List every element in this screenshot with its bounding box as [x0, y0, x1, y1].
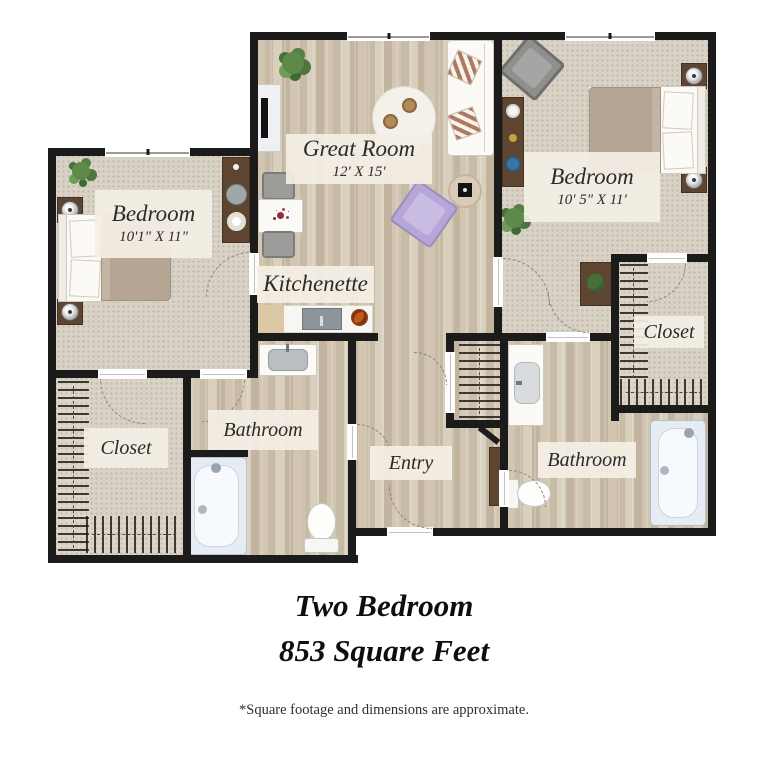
floor-plan: Great Room 12' X 15' Bedroom 10'1" X 11"…: [0, 0, 768, 768]
closet-rod: [92, 534, 176, 535]
closet-rod: [479, 348, 480, 414]
door-opening: [647, 253, 687, 263]
bathtub: [650, 420, 706, 526]
wall: [250, 333, 378, 341]
wall: [446, 420, 508, 428]
label-kitchenette: Kitchenette: [257, 266, 374, 303]
wall: [611, 405, 716, 413]
door-opening: [347, 424, 357, 460]
tv-icon: [261, 98, 268, 138]
window: [565, 31, 655, 41]
label-closet-left: Closet: [84, 428, 168, 468]
shower-head: [684, 428, 694, 438]
accent-table-plant: [587, 274, 605, 292]
room-name: Bathroom: [223, 420, 302, 441]
plant-great-room: [282, 52, 304, 74]
tv-stand: [256, 84, 281, 152]
wall: [183, 450, 248, 457]
kitchen-counter-wood: [258, 305, 284, 333]
door-opening: [98, 369, 147, 379]
door-opening: [200, 369, 247, 379]
room-dims: 12' X 15': [332, 164, 385, 181]
lamp: [685, 67, 703, 85]
dresser-knob: [509, 134, 517, 142]
room-dims: 10' 5" X 11': [557, 192, 627, 209]
plan-subtitle: 853 Square Feet: [0, 633, 768, 669]
dresser-plate: [506, 104, 520, 118]
label-bathroom-right: Bathroom: [538, 442, 636, 478]
label-closet-right: Closet: [634, 316, 704, 348]
bed-pillow: [662, 131, 694, 170]
sofa-back-line: [484, 44, 485, 152]
dresser-knob: [233, 164, 239, 170]
label-entry: Entry: [370, 446, 452, 480]
window: [105, 147, 190, 157]
flower-centerpiece: [277, 212, 284, 219]
wall: [250, 32, 258, 378]
door-opening: [546, 332, 590, 342]
dresser-mirror: [226, 184, 247, 205]
dining-chair: [262, 231, 295, 258]
kitchen-faucet: [320, 316, 323, 326]
room-name: Closet: [100, 438, 151, 459]
toilet: [307, 503, 336, 541]
plate: [402, 98, 417, 113]
door-opening: [499, 470, 509, 507]
dresser-bowl: [505, 156, 521, 172]
room-name: Bathroom: [547, 450, 626, 471]
room-name: Bedroom: [112, 202, 195, 226]
tub-drain: [198, 505, 207, 514]
sink-faucet: [286, 344, 289, 352]
room-name: Bedroom: [550, 165, 633, 189]
label-bedroom-left: Bedroom 10'1" X 11": [95, 190, 212, 258]
plate: [383, 114, 398, 129]
toilet-tank: [304, 538, 339, 553]
door-opening: [493, 257, 503, 307]
room-name: Great Room: [303, 137, 415, 161]
wall: [48, 555, 358, 563]
room-name: Kitchenette: [263, 272, 368, 296]
wall: [183, 370, 191, 563]
tub-drain: [660, 466, 669, 475]
room-name: Closet: [643, 322, 694, 343]
side-table-dot: [463, 188, 467, 192]
wall: [48, 148, 56, 563]
dresser-plate: [227, 212, 246, 231]
pizza: [351, 309, 368, 326]
room-dims: 10'1" X 11": [119, 229, 188, 246]
plant-bedroom-left: [72, 162, 90, 180]
lamp: [61, 303, 79, 321]
plant-bedroom-right: [504, 208, 524, 228]
window: [347, 31, 430, 41]
bed-pillow: [662, 91, 694, 130]
bed-headboard: [58, 214, 67, 302]
plan-disclaimer: *Square footage and dimensions are appro…: [0, 702, 768, 719]
shower-head: [211, 463, 221, 473]
bed-pillow: [69, 259, 101, 298]
closet-rod: [73, 386, 74, 548]
wall: [708, 32, 716, 536]
label-bathroom-left: Bathroom: [208, 410, 318, 450]
sink-basin: [268, 349, 308, 371]
wall: [611, 254, 619, 421]
label-bedroom-right: Bedroom 10' 5" X 11': [524, 152, 660, 222]
plan-title: Two Bedroom: [0, 588, 768, 624]
closet-rod: [626, 392, 702, 393]
bed-headboard: [697, 86, 706, 174]
sink-faucet: [516, 381, 522, 385]
room-name: Entry: [389, 453, 433, 474]
label-great-room: Great Room 12' X 15': [286, 134, 432, 184]
